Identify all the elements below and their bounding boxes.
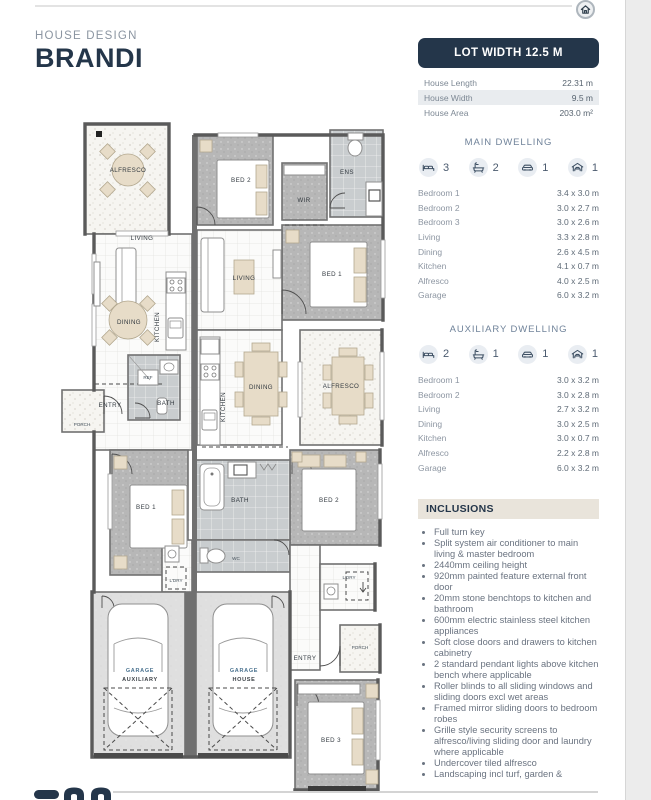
room-spec-value: 3.0 x 2.6 m	[557, 217, 599, 227]
room-spec-label: Bedroom 1	[418, 375, 460, 385]
room-label-porch-aux: PORCH	[74, 422, 91, 427]
room-label-dining-aux: DINING	[117, 319, 141, 326]
room-spec-value: 2.2 x 2.8 m	[557, 448, 599, 458]
room-spec-label: Living	[418, 404, 440, 414]
stat-cars: 1	[518, 158, 548, 177]
room-spec-label: Bedroom 2	[418, 390, 460, 400]
stat-garage: 1	[568, 158, 598, 177]
room-spec-value: 3.4 x 3.0 m	[557, 188, 599, 198]
room-spec-label: Bedroom 1	[418, 188, 460, 198]
car-icon	[518, 158, 537, 177]
room-label-bed1-aux: BED 1	[136, 504, 156, 511]
inclusion-item: Grille style security screens to alfresc…	[434, 725, 599, 758]
car-icon	[518, 345, 537, 364]
auxiliary-dwelling-stats: 2 1 1 1	[418, 345, 599, 364]
room-spec-row: Garage 6.0 x 3.2 m	[418, 460, 599, 475]
lot-row-label: House Length	[424, 78, 477, 88]
room-spec-row: Kitchen 3.0 x 0.7 m	[418, 431, 599, 446]
stat-bathrooms: 2	[469, 158, 499, 177]
room-label-living-main: LIVING	[233, 275, 256, 282]
room-spec-row: Living 2.7 x 3.2 m	[418, 402, 599, 417]
bed-count: 3	[443, 162, 449, 174]
room-spec-label: Alfresco	[418, 276, 449, 286]
room-spec-value: 3.0 x 3.2 m	[557, 375, 599, 385]
lot-row-value: 22.31 m	[562, 78, 593, 88]
car-count: 1	[542, 162, 548, 174]
main-dwelling-heading: MAIN DWELLING	[418, 137, 599, 148]
room-label-living-aux: LIVING	[131, 235, 154, 242]
inclusions-list: Full turn key Split system air condition…	[418, 527, 599, 780]
room-spec-label: Dining	[418, 419, 442, 429]
room-spec-value: 2.7 x 3.2 m	[557, 404, 599, 414]
room-spec-label: Bedroom 2	[418, 203, 460, 213]
room-spec-value: 2.6 x 4.5 m	[557, 247, 599, 257]
room-label-kitchen-aux: KITCHEN	[154, 312, 161, 342]
room-label-ensuite: ENS	[340, 169, 354, 176]
garage-icon	[568, 345, 587, 364]
lot-row-label: House Width	[424, 93, 473, 103]
inclusion-item: Split system air conditioner to main liv…	[434, 538, 599, 560]
room-spec-label: Kitchen	[418, 261, 446, 271]
stat-cars: 1	[518, 345, 548, 364]
room-label-bed2-aux: BED 2	[231, 177, 251, 184]
home-button[interactable]	[576, 0, 595, 19]
room-spec-value: 6.0 x 3.2 m	[557, 463, 599, 473]
lot-row-value: 9.5 m	[572, 93, 593, 103]
page: HOUSE DESIGN BRANDI	[0, 0, 651, 800]
wir-shelf	[284, 165, 325, 175]
inclusion-item: 2440mm ceiling height	[434, 560, 599, 571]
inclusion-item: Undercover tiled alfresco	[434, 758, 599, 769]
room-spec-value: 3.0 x 2.7 m	[557, 203, 599, 213]
main-dwelling-rooms: Bedroom 1 3.4 x 3.0 m Bedroom 2 3.0 x 2.…	[418, 186, 599, 303]
bed-icon	[419, 345, 438, 364]
room-spec-label: Dining	[418, 247, 442, 257]
garage-icon	[568, 158, 587, 177]
room-spec-label: Garage	[418, 290, 446, 300]
main-dwelling-stats: 3 2 1 1	[418, 158, 599, 177]
inclusion-item: 600mm electric stainless steel kitchen a…	[434, 615, 599, 637]
garage-count: 1	[592, 348, 598, 360]
spec-panel: LOT WIDTH 12.5 M House Length 22.31 m Ho…	[418, 38, 599, 780]
bath-count: 1	[493, 348, 499, 360]
room-spec-row: Bedroom 3 3.0 x 2.6 m	[418, 215, 599, 230]
floor-plan: ALFRESCO LIVING DINING KITCHEN ENTRY POR…	[58, 112, 390, 794]
garage-house-label-2: HOUSE	[232, 677, 255, 683]
room-spec-value: 3.0 x 0.7 m	[557, 433, 599, 443]
inclusion-item: Framed mirror sliding doors to bedroom r…	[434, 703, 599, 725]
home-icon	[580, 4, 591, 15]
inclusion-item: 20mm stone benchtops to kitchen and bath…	[434, 593, 599, 615]
room-label-bath-main: BATH	[231, 497, 249, 504]
bath-count: 2	[493, 162, 499, 174]
room-spec-value: 4.0 x 2.5 m	[557, 276, 599, 286]
garage-house-label-1: GARAGE	[230, 668, 258, 674]
page-edge	[625, 0, 651, 800]
spine-wall	[192, 135, 197, 592]
footer-divider	[113, 791, 598, 793]
garage-divider-wall	[185, 592, 196, 757]
lot-row-value: 203.0 m²	[559, 108, 593, 118]
garage-count: 1	[592, 162, 598, 174]
room-spec-row: Alfresco 2.2 x 2.8 m	[418, 446, 599, 461]
room-spec-row: Dining 2.6 x 4.5 m	[418, 244, 599, 259]
bed-icon	[419, 158, 438, 177]
room-spec-label: Kitchen	[418, 433, 446, 443]
stat-bathrooms: 1	[469, 345, 499, 364]
room-spec-value: 4.1 x 0.7 m	[557, 261, 599, 271]
inclusion-item: Full turn key	[434, 527, 599, 538]
inclusion-item: Roller blinds to all sliding windows and…	[434, 681, 599, 703]
room-spec-label: Garage	[418, 463, 446, 473]
auxiliary-dwelling-rooms: Bedroom 1 3.0 x 3.2 m Bedroom 2 3.0 x 2.…	[418, 373, 599, 475]
room-spec-row: Alfresco 4.0 x 2.5 m	[418, 274, 599, 289]
room-spec-label: Living	[418, 232, 440, 242]
room-spec-row: Living 3.3 x 2.8 m	[418, 230, 599, 245]
room-label-bed1-main: BED 1	[322, 271, 342, 278]
room-label-bed3: BED 3	[321, 737, 341, 744]
room-label-alfresco-aux: ALFRESCO	[110, 167, 147, 174]
stat-bedrooms: 3	[419, 158, 449, 177]
garage-aux-label-1: GARAGE	[126, 668, 154, 674]
room-spec-row: Dining 3.0 x 2.5 m	[418, 417, 599, 432]
lot-table-row: House Area 203.0 m²	[418, 105, 599, 120]
room-spec-value: 6.0 x 3.2 m	[557, 290, 599, 300]
room-label-laundry-aux: L'DRY	[169, 578, 182, 583]
lot-table: House Length 22.31 m House Width 9.5 m H…	[418, 75, 599, 120]
room-spec-row: Kitchen 4.1 x 0.7 m	[418, 259, 599, 274]
inclusion-item: 2 standard pendant lights above kitchen …	[434, 659, 599, 681]
eyebrow-label: HOUSE DESIGN	[35, 30, 143, 42]
top-divider	[35, 5, 572, 7]
room-entry-main	[290, 545, 320, 670]
stat-bedrooms: 2	[419, 345, 449, 364]
room-label-wc: WC	[232, 556, 240, 561]
room-spec-row: Bedroom 1 3.4 x 3.0 m	[418, 186, 599, 201]
bath-icon	[469, 345, 488, 364]
kitchen-aux-fixtures	[166, 272, 186, 350]
page-title: BRANDI	[35, 43, 143, 74]
room-label-entry-main: ENTRY	[294, 655, 317, 662]
room-label-alfresco-main: ALFRESCO	[323, 383, 360, 390]
stat-garage: 1	[568, 345, 598, 364]
car-count: 1	[542, 348, 548, 360]
bath-icon	[469, 158, 488, 177]
inclusion-item: Soft close doors and drawers to kitchen …	[434, 637, 599, 659]
room-spec-label: Alfresco	[418, 448, 449, 458]
inclusion-item: 920mm painted feature external front doo…	[434, 571, 599, 593]
room-label-entry-aux: ENTRY	[99, 402, 122, 409]
room-spec-value: 3.0 x 2.5 m	[557, 419, 599, 429]
room-spec-label: Bedroom 3	[418, 217, 460, 227]
inclusions-heading: INCLUSIONS	[418, 499, 599, 519]
auxiliary-dwelling-heading: AUXILIARY DWELLING	[418, 324, 599, 335]
room-label-wir: WIR	[297, 197, 310, 204]
room-spec-row: Bedroom 1 3.0 x 3.2 m	[418, 373, 599, 388]
room-label-porch-main: PORCH	[352, 645, 369, 650]
room-label-laundry-main: L'DRY	[342, 575, 355, 580]
room-spec-row: Bedroom 2 3.0 x 2.7 m	[418, 201, 599, 216]
room-label-bath-aux: BATH	[157, 400, 175, 407]
room-label-bed2-main: BED 2	[319, 497, 339, 504]
room-spec-value: 3.0 x 2.8 m	[557, 390, 599, 400]
inclusion-item: Landscaping incl turf, garden &	[434, 769, 599, 780]
page-header: HOUSE DESIGN BRANDI	[35, 30, 143, 74]
lot-table-row: House Width 9.5 m	[418, 90, 599, 105]
room-label-dining-main: DINING	[249, 384, 273, 391]
lot-table-row: House Length 22.31 m	[418, 75, 599, 90]
kitchen-main-fixtures	[200, 337, 220, 445]
lot-width-badge: LOT WIDTH 12.5 M	[418, 38, 599, 68]
room-label-ref: REF	[143, 375, 152, 380]
room-spec-row: Garage 6.0 x 3.2 m	[418, 288, 599, 303]
room-label-kitchen-main: KITCHEN	[220, 392, 227, 422]
bed-count: 2	[443, 348, 449, 360]
lot-row-label: House Area	[424, 108, 468, 118]
room-spec-row: Bedroom 2 3.0 x 2.8 m	[418, 387, 599, 402]
garage-aux-label-2: AUXILIARY	[122, 677, 158, 683]
room-spec-value: 3.3 x 2.8 m	[557, 232, 599, 242]
builder-logo	[33, 785, 125, 800]
